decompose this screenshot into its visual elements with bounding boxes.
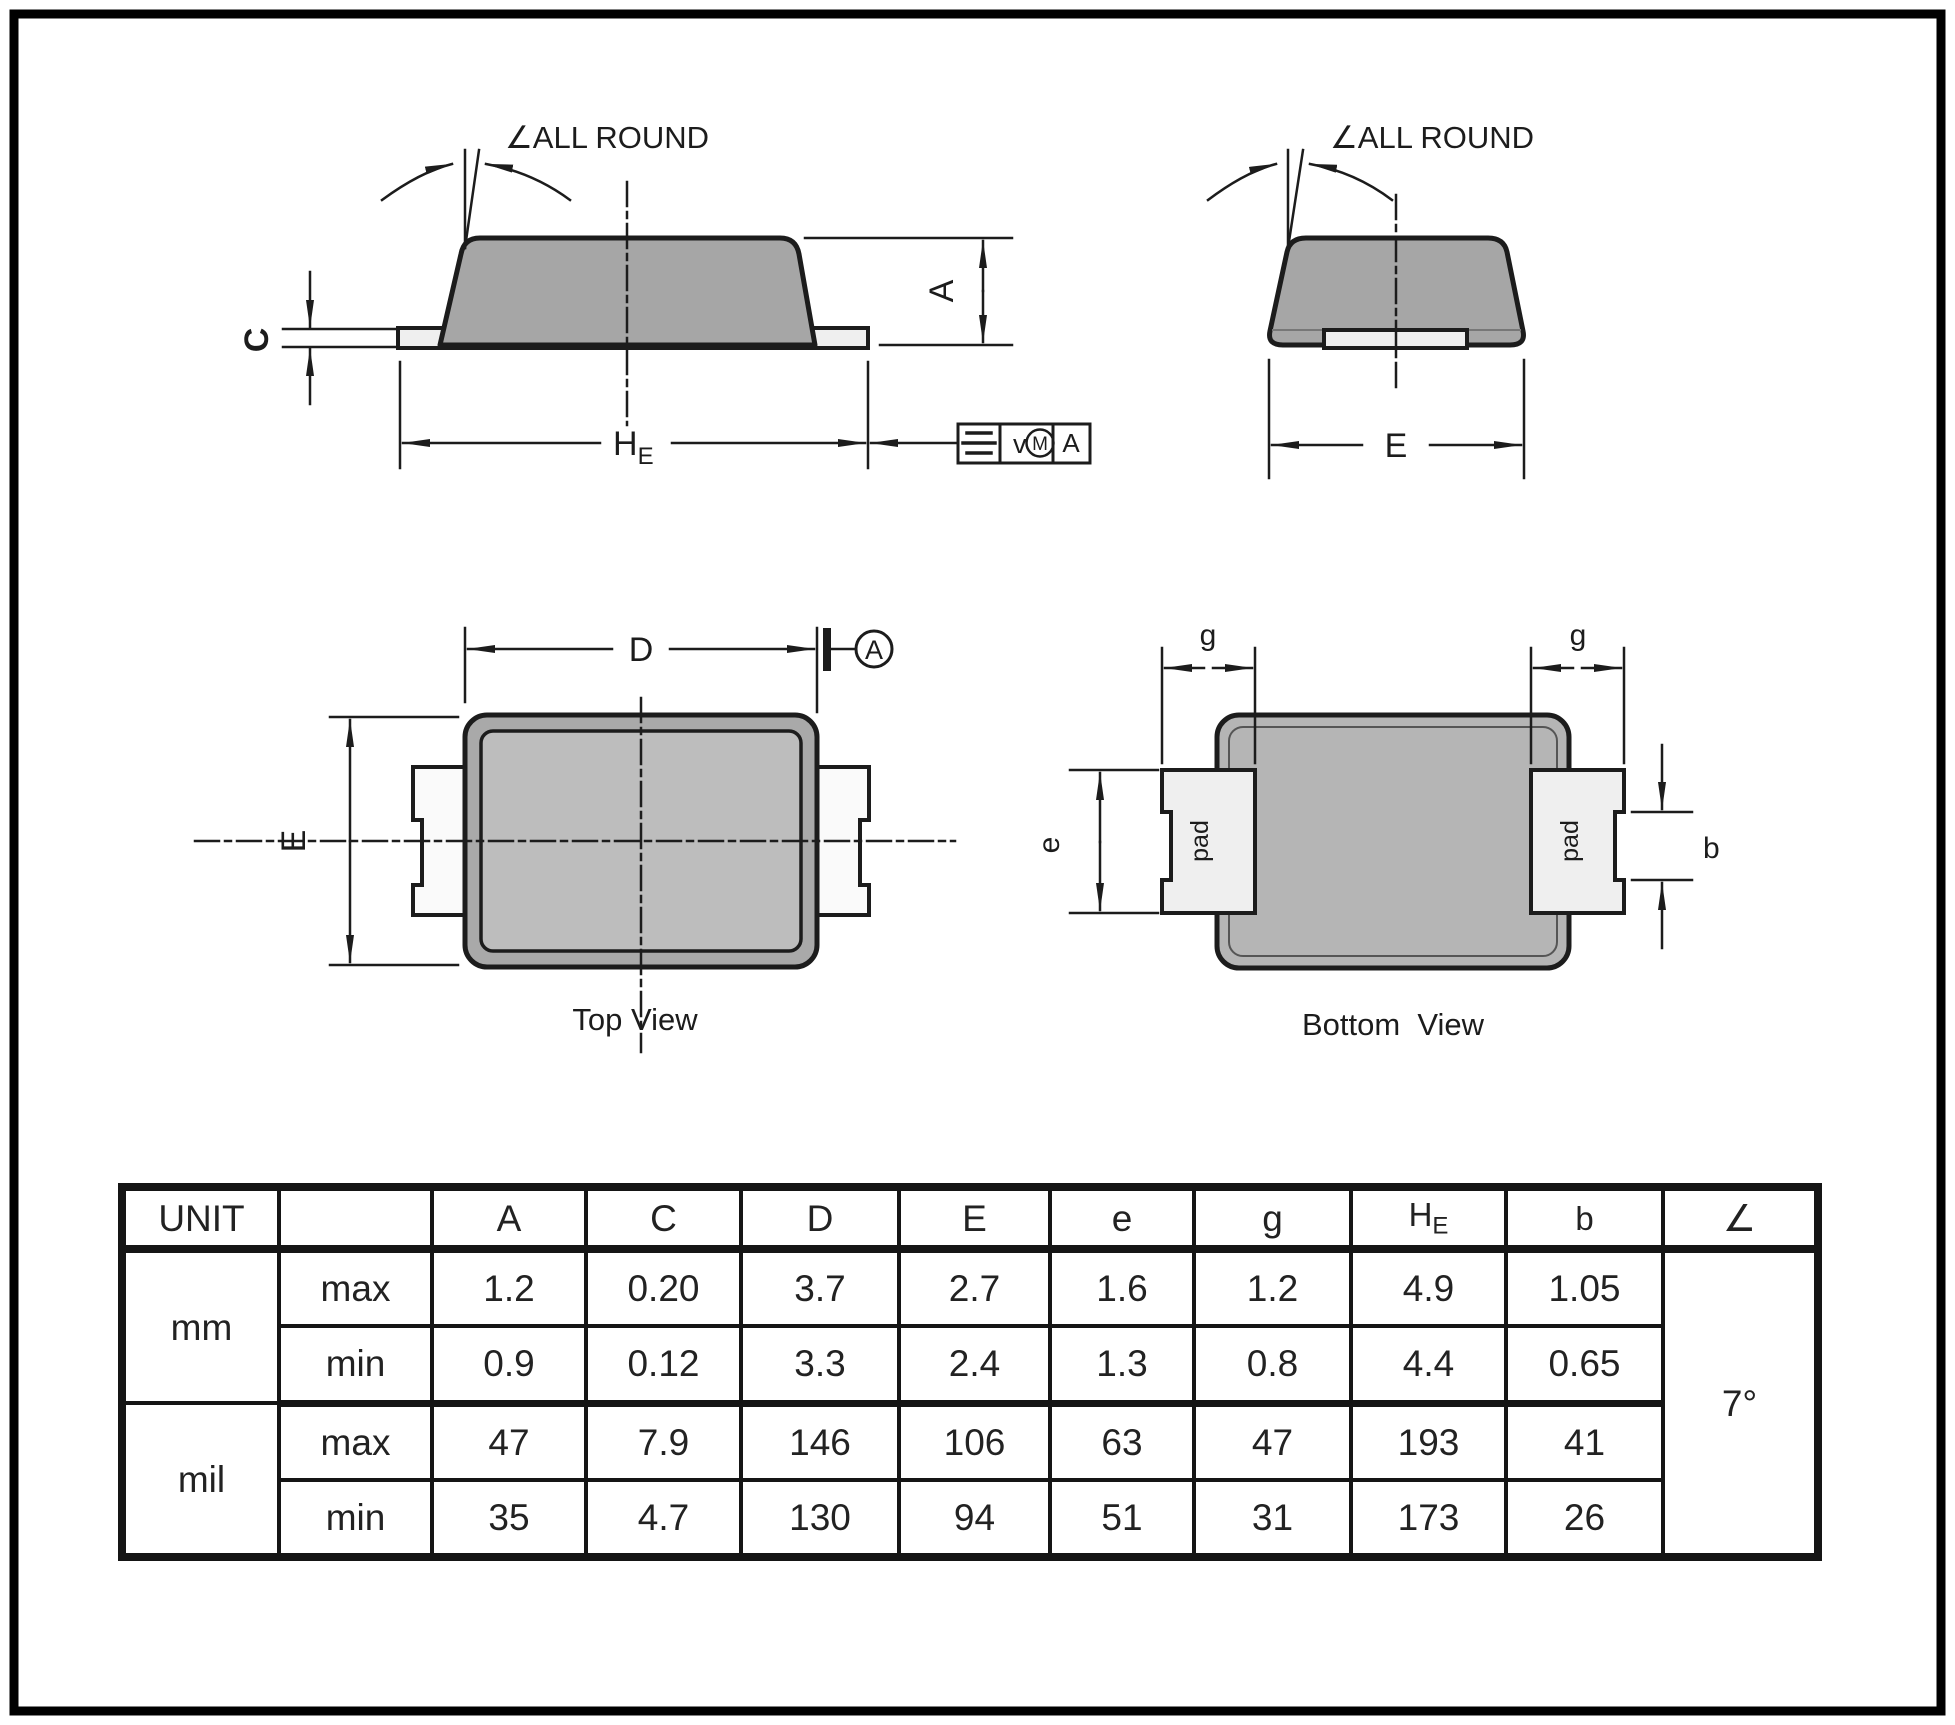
value-cell: 1.05 bbox=[1506, 1249, 1663, 1326]
feature-control-frame: v M A bbox=[958, 424, 1090, 463]
side-view-allround-callout bbox=[382, 150, 570, 248]
value-cell: 0.8 bbox=[1194, 1326, 1351, 1403]
value-cell: 4.4 bbox=[1351, 1326, 1506, 1403]
col-header-angle: ∠ bbox=[1663, 1187, 1818, 1249]
value-cell: 3.3 bbox=[741, 1326, 899, 1403]
table-row-mil-max: mil max 47 7.9 146 106 63 47 193 41 bbox=[122, 1403, 1818, 1480]
value-cell: 4.9 bbox=[1351, 1249, 1506, 1326]
value-cell: 51 bbox=[1050, 1480, 1194, 1557]
col-header-HE: HE bbox=[1351, 1187, 1506, 1249]
table-row-mil-min: min 35 4.7 130 94 51 31 173 26 bbox=[122, 1480, 1818, 1557]
dim-d: D A bbox=[465, 628, 892, 712]
dim-g-left-label: g bbox=[1200, 619, 1217, 652]
bottom-view: pad pad g g e b Bottom bbox=[1033, 619, 1720, 1042]
dim-e-topview-label: E bbox=[275, 830, 313, 853]
value-cell: 2.7 bbox=[899, 1249, 1050, 1326]
dim-e-bottomview-label: e bbox=[1033, 837, 1066, 854]
top-view: D A E Top View bbox=[195, 628, 955, 1052]
value-cell: 35 bbox=[432, 1480, 586, 1557]
value-cell: 63 bbox=[1050, 1403, 1194, 1480]
unit-cell-mm: mm bbox=[122, 1249, 279, 1403]
end-view-allround-callout bbox=[1208, 150, 1392, 248]
limit-cell: max bbox=[279, 1249, 432, 1326]
package-drawing-page: ∠ALL ROUND C A HE bbox=[0, 0, 1955, 1725]
dim-c: C bbox=[238, 272, 396, 404]
value-cell: 4.7 bbox=[586, 1480, 741, 1557]
col-header-b: b bbox=[1506, 1187, 1663, 1249]
dim-e-endview-label: E bbox=[1385, 427, 1408, 465]
value-cell: 3.7 bbox=[741, 1249, 899, 1326]
value-cell: 94 bbox=[899, 1480, 1050, 1557]
value-cell: 146 bbox=[741, 1403, 899, 1480]
dim-b: b bbox=[1632, 745, 1720, 948]
col-header-g: g bbox=[1194, 1187, 1351, 1249]
side-view-allround-label: ∠ALL ROUND bbox=[505, 120, 709, 155]
value-cell: 0.20 bbox=[586, 1249, 741, 1326]
bottom-view-body bbox=[1217, 715, 1569, 968]
value-cell: 1.2 bbox=[1194, 1249, 1351, 1326]
value-cell: 26 bbox=[1506, 1480, 1663, 1557]
table-header-row: UNIT A C D E e g HE b ∠ bbox=[122, 1187, 1818, 1249]
limit-cell: min bbox=[279, 1480, 432, 1557]
end-view: ∠ALL ROUND E bbox=[1208, 120, 1534, 478]
value-cell: 173 bbox=[1351, 1480, 1506, 1557]
value-cell: 31 bbox=[1194, 1480, 1351, 1557]
fcf-modifier: M bbox=[1032, 434, 1048, 455]
col-header-e: e bbox=[1050, 1187, 1194, 1249]
value-cell: 0.65 bbox=[1506, 1326, 1663, 1403]
value-cell: 41 bbox=[1506, 1403, 1663, 1480]
value-cell: 193 bbox=[1351, 1403, 1506, 1480]
dim-b-label: b bbox=[1703, 832, 1720, 865]
dim-he: HE bbox=[400, 362, 958, 470]
value-cell: 0.12 bbox=[586, 1326, 741, 1403]
dim-d-label: D bbox=[629, 631, 654, 669]
table-row-mm-max: mm max 1.2 0.20 3.7 2.7 1.6 1.2 4.9 1.05… bbox=[122, 1249, 1818, 1326]
fcf-value: v bbox=[1013, 429, 1027, 459]
value-cell: 47 bbox=[432, 1403, 586, 1480]
top-view-title: Top View bbox=[572, 1002, 698, 1037]
dim-g-right-label: g bbox=[1570, 619, 1587, 652]
limit-cell: max bbox=[279, 1403, 432, 1480]
end-view-allround-label: ∠ALL ROUND bbox=[1330, 120, 1534, 155]
value-cell: 1.6 bbox=[1050, 1249, 1194, 1326]
fcf-datum: A bbox=[1062, 428, 1080, 458]
angle-value-cell: 7° bbox=[1663, 1249, 1818, 1557]
table-row-mm-min: min 0.9 0.12 3.3 2.4 1.3 0.8 4.4 0.65 bbox=[122, 1326, 1818, 1403]
value-cell: 106 bbox=[899, 1403, 1050, 1480]
pad-left-label: pad bbox=[1186, 820, 1214, 862]
value-cell: 0.9 bbox=[432, 1326, 586, 1403]
limit-cell: min bbox=[279, 1326, 432, 1403]
side-view: ∠ALL ROUND C A HE bbox=[238, 120, 1090, 470]
value-cell: 2.4 bbox=[899, 1326, 1050, 1403]
value-cell: 47 bbox=[1194, 1403, 1351, 1480]
value-cell: 7.9 bbox=[586, 1403, 741, 1480]
col-header-E: E bbox=[899, 1187, 1050, 1249]
unit-header-cell: UNIT bbox=[122, 1187, 279, 1249]
col-header-C: C bbox=[586, 1187, 741, 1249]
dim-c-label: C bbox=[238, 328, 276, 353]
pad-right-label: pad bbox=[1556, 820, 1584, 862]
col-header-A: A bbox=[432, 1187, 586, 1249]
datum-a-label: A bbox=[865, 635, 883, 665]
dim-e-bottomview: e bbox=[1033, 770, 1158, 913]
value-cell: 1.2 bbox=[432, 1249, 586, 1326]
dim-he-label: HE bbox=[613, 425, 654, 470]
dim-a-label: A bbox=[923, 279, 961, 302]
col-header-D: D bbox=[741, 1187, 899, 1249]
bottom-view-title: Bottom View bbox=[1302, 1007, 1485, 1042]
limit-header-cell bbox=[279, 1187, 432, 1249]
value-cell: 130 bbox=[741, 1480, 899, 1557]
dimension-table: UNIT A C D E e g HE b ∠ mm max 1.2 0.20 … bbox=[118, 1183, 1822, 1561]
unit-cell-mil: mil bbox=[122, 1403, 279, 1557]
value-cell: 1.3 bbox=[1050, 1326, 1194, 1403]
